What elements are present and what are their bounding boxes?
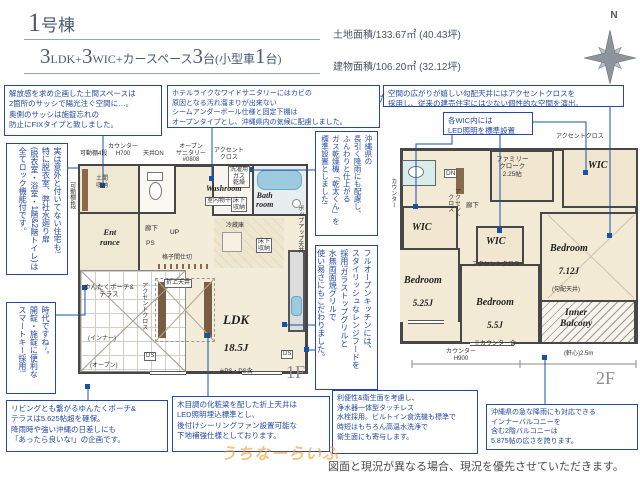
dn-label: DN xyxy=(444,169,457,178)
layout-seg: 3 xyxy=(40,44,51,68)
bedroom3-note: ※カウンター含 xyxy=(474,341,516,348)
underfloor-wash-label: 床下 収納 xyxy=(231,197,247,212)
layout-seg: 台) xyxy=(266,52,282,66)
hall-label-2f: 廊下 xyxy=(466,202,479,209)
ldk-name: LDK xyxy=(200,313,272,328)
layout-seg: 1 xyxy=(255,44,266,68)
kitchen-sink xyxy=(291,296,302,316)
entrance-label: Ent rance xyxy=(100,228,120,247)
wic-left-label: WIC xyxy=(412,222,431,233)
doma-storage-room xyxy=(80,166,140,214)
counter-h900-label: カウンター H900 xyxy=(446,349,476,362)
layout-seg: 3 xyxy=(193,44,204,68)
window-1f-left xyxy=(150,371,186,375)
wic-top-room xyxy=(562,150,636,208)
accent-cloth-top-label: アクセント クロス xyxy=(214,148,244,161)
building-area: 建物面積/106.20㎡ (32.12坪) xyxy=(333,60,564,76)
ldk-size: 18.5J xyxy=(200,342,272,354)
window-2f-left xyxy=(408,320,444,324)
porch-inner-label: (インナー) xyxy=(88,336,116,343)
watermark: うちなーらいふ xyxy=(220,440,339,464)
layout-seg: WIC+カースペース xyxy=(92,52,192,66)
lattice-partition xyxy=(158,264,208,269)
floor-label-2f: 2F xyxy=(596,368,615,389)
callout-sanitary: ホテルライクなワイドサニタリーにはカビの 原因となる汚れ溜まりが出来ない シーム… xyxy=(167,85,380,128)
bathtub xyxy=(257,170,302,190)
accent-top-2f-label: アクセントクロス xyxy=(556,134,604,141)
callout-smart-key: 時代ですね~。 開錠・施錠に便利な スマートキー採用! xyxy=(6,302,56,394)
ldk-label: LDK 18.5J ※PS・DS含 xyxy=(200,298,272,390)
bedroom1-name: Bedroom xyxy=(550,243,588,254)
callout-porch: リビングとも繋がるゆんたくポーチ& テラスは5.625帖超を確保。 降雨時や強い… xyxy=(6,400,168,452)
bedroom1-size: 7.12J xyxy=(550,266,588,276)
shelf-top-label: 可動棚4段 xyxy=(80,151,107,158)
popup-ceiling-label: ポップアップ天井 xyxy=(296,205,303,253)
callout-balcony: 沖縄県の急な降雨にも対応できる インナーバルコニーを 含む2階バルコニーは 5.… xyxy=(486,404,638,450)
coffered-label: 折上天井 xyxy=(164,279,192,288)
bedroom2-label: Bedroom 5.25J xyxy=(404,264,442,319)
layout-line: 3LDK+3WIC+カースペース3台(小型車1台) xyxy=(40,44,282,69)
bedroom3-size: 5.5J xyxy=(474,320,516,330)
up-label: UP xyxy=(170,229,179,236)
counter-side-label: カウンター xyxy=(389,178,396,208)
fridge-label: 冷蔵庫 xyxy=(226,223,244,230)
building-number: 1 xyxy=(28,8,41,37)
compass-icon: N xyxy=(582,6,638,84)
bedroom1-label: Bedroom 7.12J xyxy=(550,232,588,287)
ldk-note: ※PS・DS含 xyxy=(200,369,272,376)
callout-wic-led: 各WIC内には LED照明を標準設置 xyxy=(443,112,533,135)
bedroom3-name: Bedroom xyxy=(474,297,516,308)
ds-left-label: DS xyxy=(144,352,156,361)
layout-seg: LDK+ xyxy=(51,52,82,66)
accent-cloth-side-label: アクセントクロス xyxy=(140,282,147,330)
wic-mid-label: WIC xyxy=(486,236,505,247)
underfloor-kitchen-label: 床下 収納 xyxy=(256,238,272,253)
flyer-page: 1号棟 3LDK+3WIC+カースペース3台(小型車1台) 土地面積/133.6… xyxy=(0,0,640,480)
bedroom2-size: 5.25J xyxy=(404,298,442,308)
compass-n-glyph: N xyxy=(610,10,617,21)
hall-label-1f: 廊下 xyxy=(145,225,158,232)
eaves-label: (軒心)2.5m xyxy=(564,351,593,358)
shelf-side-label: 可動棚4段 xyxy=(68,182,75,209)
bedroom1-note-label: (勾配天井) xyxy=(552,287,580,294)
bedroom3-label: Bedroom 5.5J ※カウンター含 xyxy=(474,286,516,359)
porch-label: ゆんたくポーチ& テラス xyxy=(84,284,134,299)
doma-label: 土間 収納 xyxy=(96,176,108,189)
layout-seg: 台(小型車 xyxy=(203,52,255,66)
toilet-bowl-1f xyxy=(149,182,162,200)
ds-right-label: DS xyxy=(281,350,293,359)
bathroom-label: Bath room xyxy=(256,192,273,210)
callout-kitchen: フルオープンキッチンには、 スタイリッシュなレンジフードを 採用!ガラストップグ… xyxy=(315,245,378,390)
land-area: 土地面積/133.67㎡ (40.43坪) xyxy=(333,28,564,44)
open-sanitary-label: オープン サニタリー #0808 xyxy=(176,144,206,164)
disclaimer-text: 図面と現況が異なる場合、現況を優先させていただきます。 xyxy=(328,458,624,474)
inner-balcony-label: Inner Balcony xyxy=(560,308,592,329)
doma-shelf xyxy=(82,169,88,211)
kitchen-counter xyxy=(288,250,305,332)
ceiling-dn-label: 天井DN xyxy=(143,151,164,158)
wic-top-label: WIC xyxy=(588,160,607,171)
lattice-label: 格子間仕切 xyxy=(162,255,192,262)
ceiling-beam-left xyxy=(158,282,166,338)
building-suffix: 号棟 xyxy=(41,16,75,35)
indoor-drying-label: 室内物干 xyxy=(205,197,233,206)
callout-gas-dryer: 沖縄県の 長引く降雨にも配慮し、 ふんわりと仕上がる ガス乾燥機「乾太くん」を … xyxy=(315,131,378,236)
page-title: 1号棟 xyxy=(28,8,75,38)
layout-seg: 3 xyxy=(82,44,93,68)
callout-sloped-ceiling: 空間の広がりが嬉しい勾配天井にはアクセントクロスを 採用し、従来の建売住宅には少… xyxy=(383,85,624,107)
family-cloak-label: ファミリー クローク 2.25帖 xyxy=(496,156,529,178)
callout-faucet: 利便性&衛生面を考慮し、 浄水器一体型タッチレス 水栓採用。ビルトイン食洗機も標… xyxy=(332,390,478,454)
accent-left-2f-label: アクセント クロス xyxy=(446,188,459,218)
header-rule-bottom xyxy=(24,73,320,74)
bedroom2-name: Bedroom xyxy=(404,275,442,286)
porch-open-label: (オープン) xyxy=(90,363,118,370)
header-rule-top xyxy=(24,39,320,40)
fridge-space xyxy=(222,232,242,252)
washroom-label: Washroom xyxy=(206,185,241,194)
callout-doma: 解放感を求め企画した土間スペースは 2箇所のサッシで陽光注ぐ空間に…。 奥側のサ… xyxy=(4,85,162,136)
callout-door-lock: 実は意外と付いてない住宅も! 特に脱衣室、弊社水廻り扉 (脱衣室・浴室・1階&2… xyxy=(6,143,68,275)
floor-label-1f: 1F xyxy=(286,362,305,383)
accent-mid-label: アクセントクロス xyxy=(472,262,520,269)
toilet-tank-1f xyxy=(147,172,163,181)
ps-label: PS xyxy=(146,240,155,247)
toilet-bowl-2f xyxy=(408,166,424,178)
counter-h700-label: カウンター H700 xyxy=(108,144,138,157)
